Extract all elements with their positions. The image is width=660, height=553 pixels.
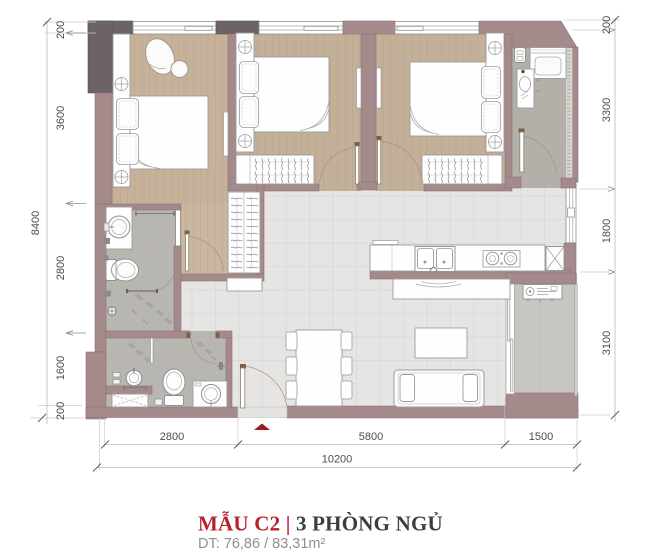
svg-text:DT: 76,86 / 83,31m²: DT: 76,86 / 83,31m² xyxy=(198,536,326,552)
svg-text:3600: 3600 xyxy=(55,106,67,130)
svg-text:200: 200 xyxy=(55,402,67,420)
svg-text:200: 200 xyxy=(601,16,613,34)
svg-text:10200: 10200 xyxy=(322,454,353,466)
svg-text:3300: 3300 xyxy=(601,98,613,122)
svg-text:8400: 8400 xyxy=(30,211,42,235)
svg-text:1800: 1800 xyxy=(601,219,613,243)
svg-text:MẪU C2 | 3 PHÒNG NGỦ: MẪU C2 | 3 PHÒNG NGỦ xyxy=(198,511,443,536)
svg-text:3100: 3100 xyxy=(601,331,613,355)
svg-text:2800: 2800 xyxy=(55,256,67,280)
svg-text:1600: 1600 xyxy=(55,356,67,380)
svg-text:1500: 1500 xyxy=(529,431,553,443)
svg-text:5800: 5800 xyxy=(359,431,383,443)
svg-text:2800: 2800 xyxy=(160,431,184,443)
svg-text:200: 200 xyxy=(55,21,67,39)
